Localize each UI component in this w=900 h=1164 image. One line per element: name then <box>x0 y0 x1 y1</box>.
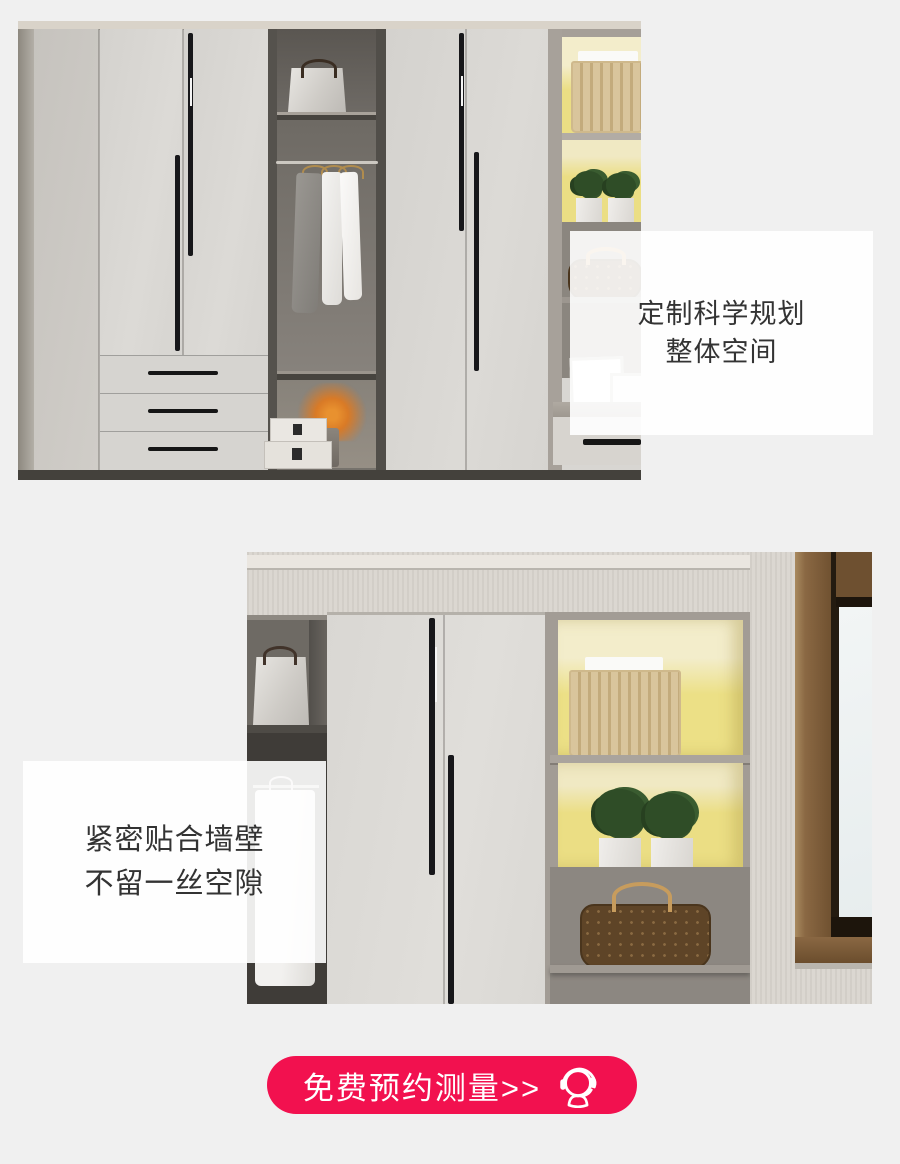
door-seam <box>443 615 445 1004</box>
drawer-divider <box>100 355 268 356</box>
handbag-handle <box>612 882 672 912</box>
wardrobe-door <box>184 29 268 355</box>
wall <box>750 552 795 1004</box>
door-handle <box>175 155 180 351</box>
green-plant <box>595 789 647 837</box>
side-wall-shadow <box>18 29 34 480</box>
bag-handle <box>301 59 337 78</box>
photo-wardrobe-wall-fit <box>247 552 872 1004</box>
box-clasp <box>293 424 302 435</box>
window-sash <box>831 552 839 937</box>
shopping-bag <box>253 657 309 725</box>
green-plant <box>574 171 604 197</box>
cabinet-frame <box>562 29 641 37</box>
feature-text-line: 整体空间 <box>666 333 778 371</box>
drawer-handle <box>148 371 218 375</box>
door-top-edge <box>327 612 545 615</box>
green-plant <box>606 173 636 198</box>
box-clasp <box>292 448 302 460</box>
green-plant <box>645 793 695 838</box>
door-handle <box>448 755 454 1004</box>
plant-pot <box>576 198 602 222</box>
photo-wardrobe-overview <box>18 21 641 480</box>
hanging-shirt <box>322 172 342 305</box>
bag-handle <box>263 646 297 665</box>
feature-text-line: 不留一丝空隙 <box>84 862 264 906</box>
window-glass <box>839 607 872 917</box>
designer-handbag <box>580 904 711 969</box>
wardrobe-door <box>386 29 553 470</box>
niche-wall <box>376 29 386 470</box>
drawer-handle <box>148 447 218 451</box>
shelf <box>550 965 750 973</box>
wall <box>795 969 872 1004</box>
drawer-handle <box>148 409 218 413</box>
niche-wall <box>268 29 277 470</box>
plinth <box>18 470 641 480</box>
drawer-divider <box>100 393 268 394</box>
free-measure-cta-button[interactable]: 免费预约测量>> <box>267 1056 637 1114</box>
door-seam <box>465 29 467 470</box>
hanging-jacket <box>292 173 323 314</box>
cta-label: 免费预约测量>> <box>303 1063 541 1108</box>
door-handle <box>188 33 193 256</box>
unit-side-shade <box>309 620 327 725</box>
feature-text-line: 紧密贴合墙壁 <box>84 818 264 862</box>
plant-pot <box>599 838 641 867</box>
promo-page: 定制科学规划 整体空间 紧密贴合墙壁 不留一丝空隙 免费预约测量>> <box>0 0 900 1164</box>
window-sash <box>836 597 872 607</box>
window-frame-bottom <box>795 937 872 963</box>
wardrobe-door <box>100 29 183 355</box>
headset-icon <box>555 1062 601 1108</box>
shelf <box>247 725 327 733</box>
wicker-basket <box>571 61 641 133</box>
plant-pot <box>608 198 634 222</box>
window-frame <box>795 552 836 963</box>
handle-reflection <box>461 76 463 106</box>
handle-reflection <box>435 647 437 702</box>
window-sash <box>831 917 872 937</box>
door-handle <box>459 33 464 231</box>
feature-text-line: 定制科学规划 <box>638 295 806 333</box>
handle-reflection <box>190 78 192 106</box>
wicker-basket <box>569 670 681 757</box>
wardrobe-door <box>34 29 99 470</box>
drawer-divider <box>100 431 268 432</box>
hanging-rod <box>276 161 378 164</box>
white-cloth <box>585 657 663 671</box>
feature-box-wall-fit: 紧密贴合墙壁 不留一丝空隙 <box>23 761 326 963</box>
feature-box-planning: 定制科学规划 整体空间 <box>570 231 873 435</box>
plant-pot <box>651 838 693 867</box>
door-handle <box>474 152 479 371</box>
window-frame-top <box>836 552 872 597</box>
drawer-handle <box>583 439 641 445</box>
